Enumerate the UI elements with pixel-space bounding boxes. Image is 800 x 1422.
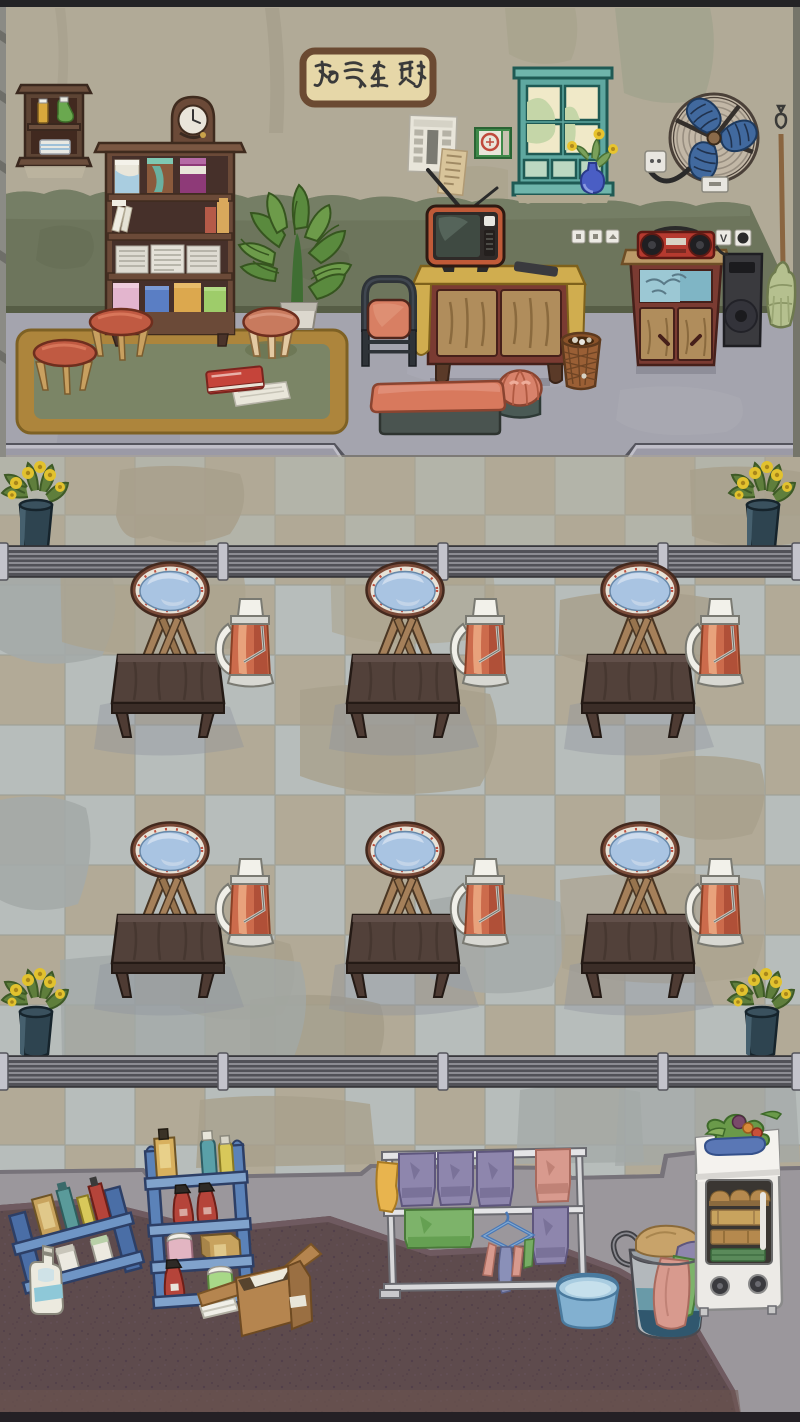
svg-text:V: V — [720, 233, 728, 245]
